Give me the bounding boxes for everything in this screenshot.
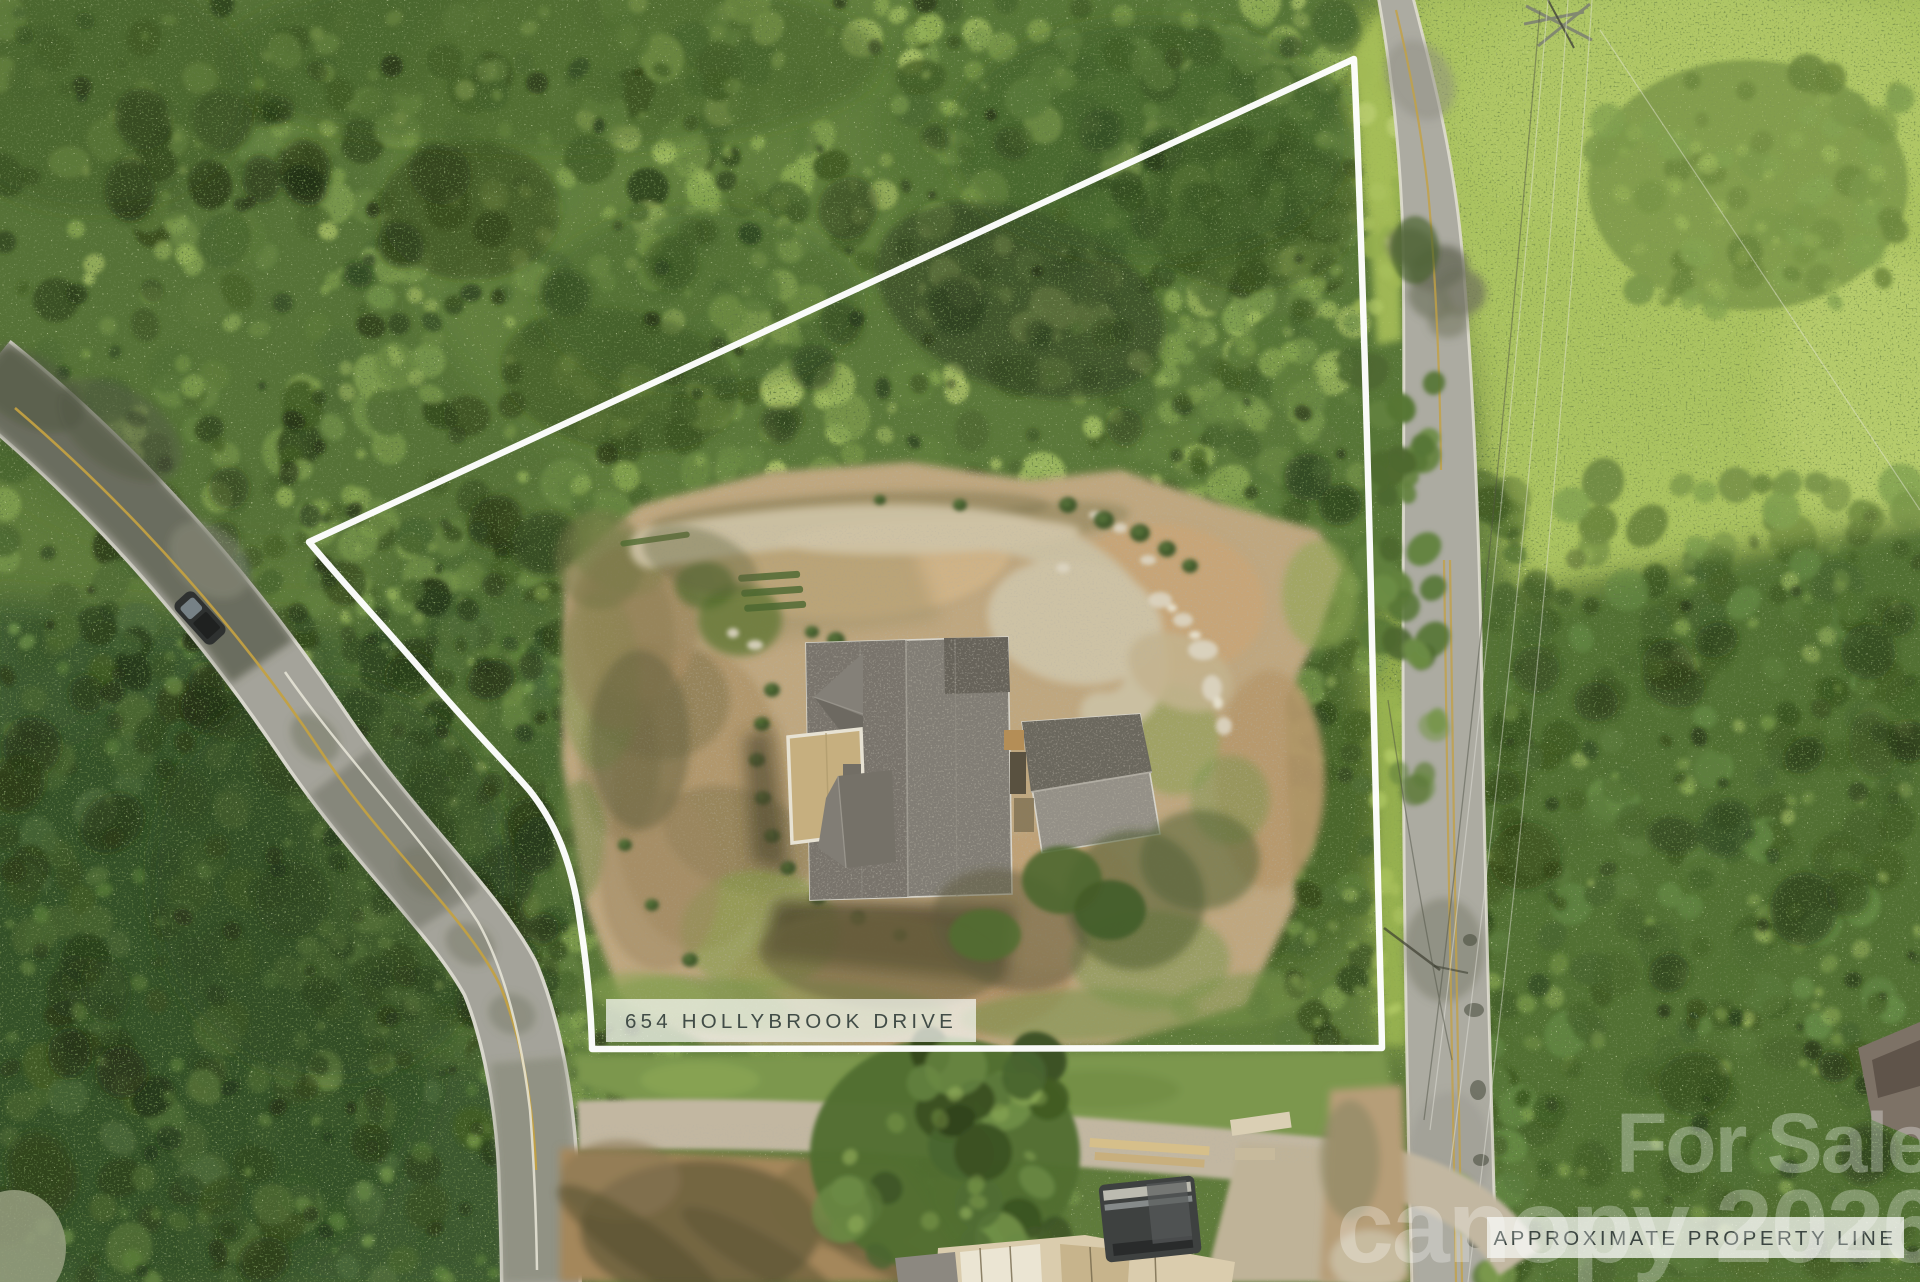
svg-text:canopy 2026: canopy 2026 — [1336, 1169, 1920, 1282]
svg-text:654 HOLLYBROOK DRIVE: 654 HOLLYBROOK DRIVE — [625, 1010, 957, 1033]
